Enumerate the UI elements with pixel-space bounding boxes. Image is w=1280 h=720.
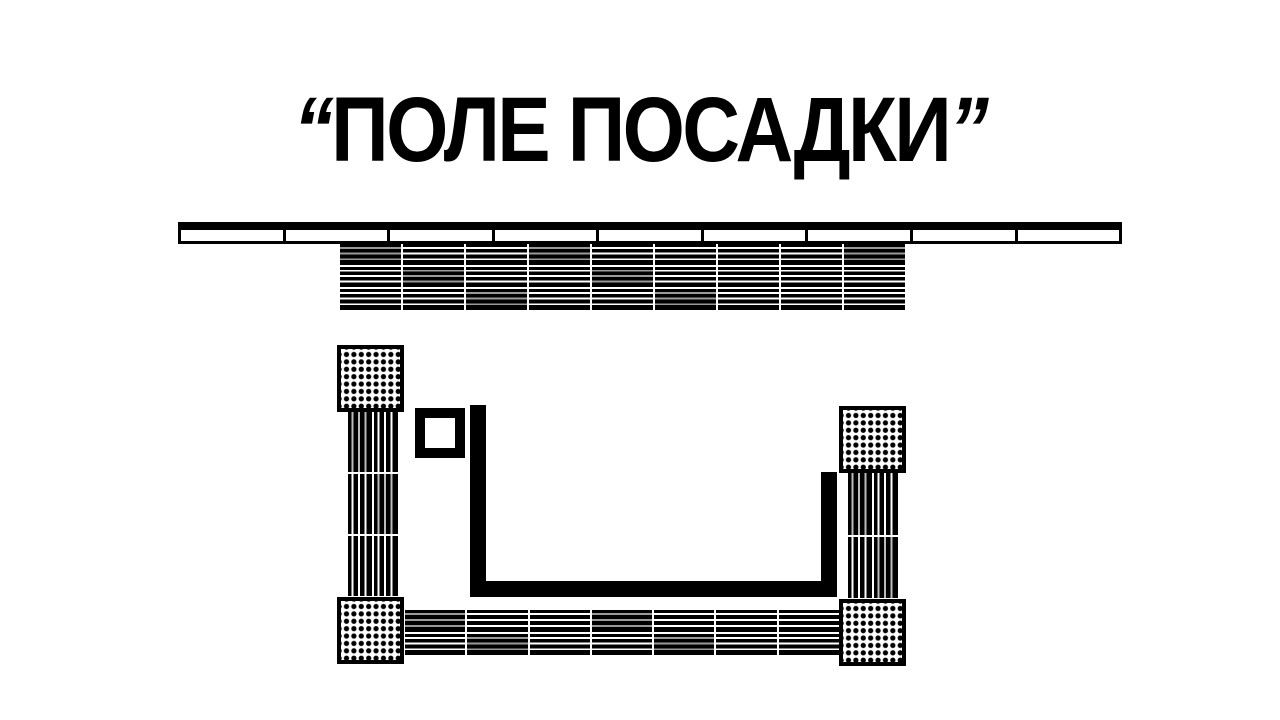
pallet-cell: [466, 267, 527, 288]
shelf-elevation: [178, 222, 1122, 244]
pallet-cell: [848, 537, 872, 599]
pallet-cell: [781, 267, 842, 288]
shelf-segment: [701, 227, 809, 244]
pallet-cell: [348, 474, 372, 534]
pallet-cell: [781, 289, 842, 310]
pallet-cell: [530, 610, 590, 632]
pallet-grid-top-bed: [340, 244, 905, 310]
pallet-cell: [467, 610, 527, 632]
pallet-cell: [405, 634, 465, 656]
pallet-cell: [374, 536, 398, 596]
pallet-cell: [592, 267, 653, 288]
pallet-cell: [592, 289, 653, 310]
pallet-cell: [655, 289, 716, 310]
pallet-cell: [466, 244, 527, 265]
pallet-cell: [716, 634, 776, 656]
pallet-cell: [403, 267, 464, 288]
pallet-cell: [467, 634, 527, 656]
gabion-square-top-left: [337, 345, 404, 412]
pallet-cell: [716, 610, 776, 632]
plan-slide: “ПОЛЕ ПОСАДКИ”: [0, 0, 1280, 720]
pallet-cell: [655, 244, 716, 265]
pallet-cell: [592, 244, 653, 265]
pallet-cell: [592, 610, 652, 632]
pallet-cell: [340, 267, 401, 288]
pallet-cell: [779, 634, 839, 656]
pallet-cell: [781, 244, 842, 265]
pallet-cell: [374, 474, 398, 534]
plan-title-text: “ПОЛЕ ПОСАДКИ”: [294, 84, 987, 176]
pallet-cell: [874, 473, 898, 535]
shelf-segment: [492, 227, 600, 244]
pallet-cell: [844, 267, 905, 288]
pallet-cell: [874, 537, 898, 599]
pallet-cell: [718, 244, 779, 265]
pallet-cell: [403, 289, 464, 310]
pallet-cell: [530, 634, 590, 656]
pallet-cell: [529, 244, 590, 265]
pallet-cell: [718, 267, 779, 288]
pallet-cell: [848, 473, 872, 535]
pallet-grid-left-column: [348, 412, 398, 596]
pallet-grid-right-column: [848, 473, 898, 598]
pallet-cell: [529, 289, 590, 310]
shelf-segment: [178, 227, 286, 244]
pallet-cell: [340, 289, 401, 310]
pallet-cell: [592, 634, 652, 656]
shelf-segment: [387, 227, 495, 244]
shelf-segment: [283, 227, 391, 244]
pallet-cell: [655, 267, 716, 288]
title-label: ПОЛЕ ПОСАДКИ: [331, 79, 949, 181]
pallet-cell: [340, 244, 401, 265]
shelf-segment: [596, 227, 704, 244]
pallet-cell: [844, 289, 905, 310]
pallet-cell: [529, 267, 590, 288]
gabion-square-bottom-right: [839, 599, 906, 666]
square-planter-marker: [415, 408, 465, 458]
pallet-cell: [654, 610, 714, 632]
pallet-cell: [844, 244, 905, 265]
gabion-square-bottom-left: [337, 597, 404, 664]
shelf-segment: [805, 227, 913, 244]
shelf-segment: [1015, 227, 1123, 244]
u-wall-left-arm: [470, 405, 486, 597]
pallet-cell: [374, 412, 398, 472]
pallet-cell: [348, 536, 372, 596]
pallet-grid-bottom-bed: [405, 610, 839, 655]
u-wall-bottom-bar: [470, 581, 837, 597]
pallet-cell: [779, 610, 839, 632]
pallet-cell: [403, 244, 464, 265]
page-title: “ПОЛЕ ПОСАДКИ”: [0, 84, 1280, 176]
u-wall-right-arm: [821, 472, 837, 597]
shelf-segment: [910, 227, 1018, 244]
pallet-cell: [466, 289, 527, 310]
pallet-cell: [654, 634, 714, 656]
gabion-square-top-right: [839, 406, 906, 473]
pallet-cell: [718, 289, 779, 310]
pallet-cell: [405, 610, 465, 632]
pallet-cell: [348, 412, 372, 472]
